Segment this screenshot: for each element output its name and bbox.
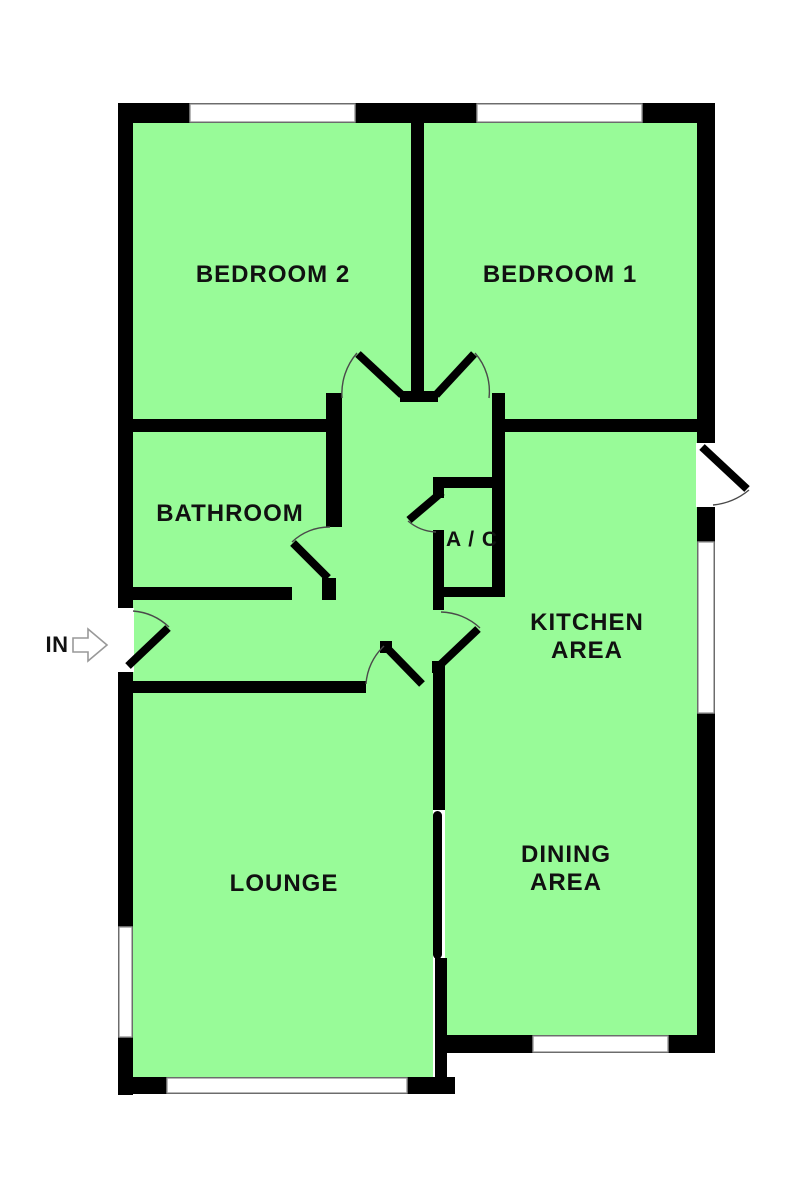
wall-lounge-dining-partition-bottom: [435, 958, 447, 1093]
entrance-arrow-icon: [73, 629, 107, 661]
floor-plan-drawing: BEDROOM 2 BEDROOM 1 BATHROOM A / C KITCH…: [0, 0, 800, 1200]
wall-lounge-dining-partition-top: [433, 670, 445, 810]
wall-ac-left: [433, 530, 444, 610]
label-ac: A / C: [446, 528, 498, 551]
window-lounge-bottom: [167, 1078, 407, 1093]
window-bedroom1: [477, 104, 642, 122]
wall-bedroom-divider: [411, 121, 424, 392]
wall-lounge-top: [133, 681, 366, 693]
label-bedroom2: BEDROOM 2: [196, 261, 350, 288]
window-bedroom2: [190, 104, 355, 122]
floor-kitchen-dining: [445, 432, 697, 1035]
wall-bathroom-bottom: [118, 587, 292, 600]
label-dining-line2: AREA: [530, 869, 602, 896]
label-bathroom: BATHROOM: [156, 500, 304, 527]
door-leaf-lounge-dining: [433, 811, 442, 959]
window-dining-bottom: [533, 1036, 668, 1052]
wall-bathroom-right: [326, 393, 342, 527]
wall-kitchen-top: [505, 419, 714, 432]
wall-ac-top: [433, 477, 492, 488]
wall-hall-right-jamb-ac-right: [492, 393, 505, 592]
label-kitchen-line1: KITCHEN: [530, 609, 644, 636]
wall-ac-bottom: [444, 587, 505, 597]
label-entrance-in: IN: [46, 632, 69, 657]
label-dining-line1: DINING: [521, 841, 611, 868]
label-lounge: LOUNGE: [230, 870, 339, 897]
wall-bedroom-door-base: [400, 391, 438, 402]
arc-back-door: [713, 490, 749, 505]
window-lounge-left: [119, 927, 132, 1037]
wall-bedroom2-bathroom: [118, 419, 342, 432]
window-kitchen-right: [698, 542, 714, 713]
floor-plan: BEDROOM 2 BEDROOM 1 BATHROOM A / C KITCH…: [0, 0, 800, 1200]
label-bedroom1: BEDROOM 1: [483, 261, 637, 288]
label-kitchen-line2: AREA: [551, 637, 623, 664]
wall-bathroom-door-post: [322, 578, 336, 600]
